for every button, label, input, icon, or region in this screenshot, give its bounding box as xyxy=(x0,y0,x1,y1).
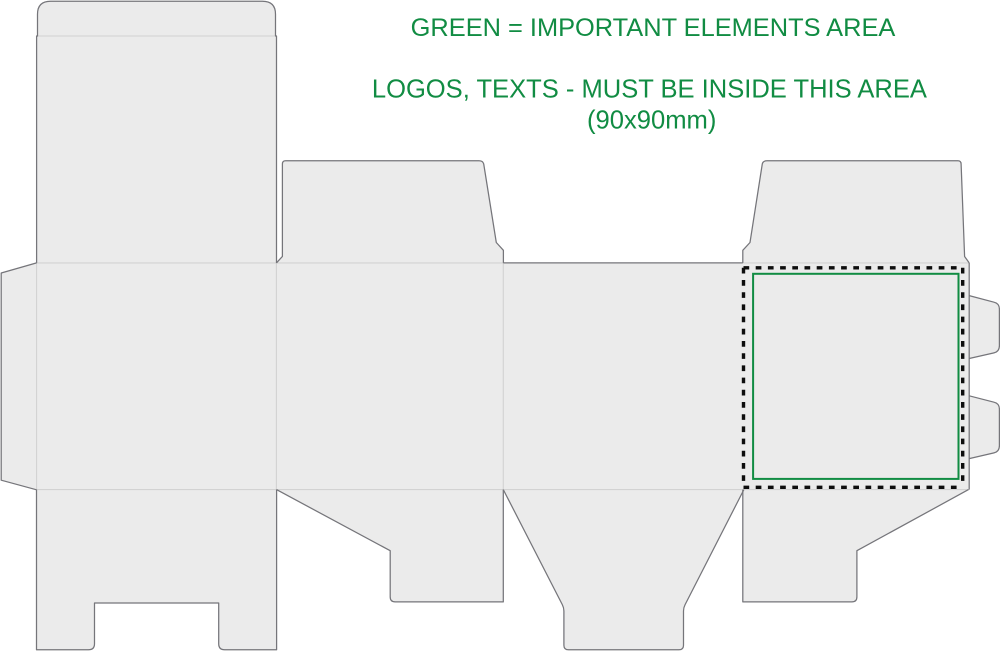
svg-text:GREEN = IMPORTANT ELEMENTS ARE: GREEN = IMPORTANT ELEMENTS AREA xyxy=(411,14,896,42)
svg-text:LOGOS, TEXTS - MUST BE INSIDE: LOGOS, TEXTS - MUST BE INSIDE THIS AREA xyxy=(372,76,927,104)
svg-text:(90x90mm): (90x90mm) xyxy=(587,106,716,134)
